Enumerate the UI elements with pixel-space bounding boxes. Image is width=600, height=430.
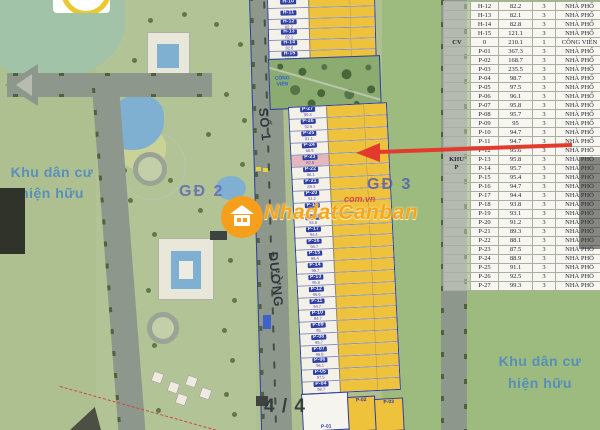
lot-label: H-10 — [280, 0, 296, 5]
table-row: P-01367.33NHÀ PHỐ — [444, 47, 600, 56]
lot-strip-left: P-0995 — [300, 321, 337, 334]
table-cell-area: 82.2 — [499, 2, 533, 10]
lot-area: 95.7 — [311, 269, 319, 273]
table-cell-area: 99.3 — [499, 282, 533, 290]
lot-strip-left: H-1282.2 — [269, 19, 310, 30]
table-cell-floors: 3 — [533, 183, 556, 191]
label-phase-2: GĐ 2 — [179, 183, 224, 201]
table-cell-group — [444, 210, 471, 218]
lot-strip-left: H-10 — [268, 0, 309, 8]
table-cell-floors: 3 — [533, 165, 556, 173]
table-cell-id: P-09 — [471, 119, 499, 127]
table-cell-floors: 3 — [533, 65, 556, 73]
roundabout — [133, 152, 167, 186]
table-cell-floors: 3 — [533, 92, 556, 100]
road-marker-yellow — [263, 168, 268, 172]
group-label-line: P — [444, 164, 469, 172]
page-marker: 4 / 4 — [264, 396, 306, 418]
table-cell-id: H-14 — [471, 20, 499, 28]
tree-icons — [0, 0, 5, 5]
table-cell-group — [444, 92, 471, 100]
road-marking — [13, 73, 210, 76]
table-row: P-0795.83NHÀ PHỐ — [444, 101, 600, 110]
table-row: P-2387.53NHÀ PHỐ — [444, 246, 600, 255]
table-cell-floors: 3 — [533, 119, 556, 127]
lot-area: 95.8 — [312, 280, 320, 284]
table-cell-area: 95.7 — [499, 110, 533, 118]
table-cell-id: P-21 — [471, 228, 499, 236]
table-cell-id: P-01 — [471, 47, 499, 55]
table-cell-area: 95 — [499, 119, 533, 127]
lot-strip-left: P-0795.8 — [301, 345, 338, 358]
table-row: P-2091.23NHÀ PHỐ — [444, 219, 600, 228]
table-row: P-2692.53NHÀ PHỐ — [444, 273, 600, 282]
road-west-arrow-inner — [16, 74, 32, 96]
lot-strip-left: P-2387.5 — [291, 154, 328, 167]
lot-strip-left: P-1595.4 — [296, 249, 333, 262]
table-cell-group — [444, 174, 471, 182]
table-cell-group: CV — [444, 38, 471, 46]
table-cell-group — [444, 20, 471, 28]
table-cell-group — [444, 192, 471, 200]
corner-logo — [53, 0, 110, 13]
lot-area: 94.4 — [310, 233, 318, 237]
lot-area: 95.6 — [313, 292, 321, 296]
table-cell-floors: 3 — [533, 147, 556, 155]
table-cell-floors: 1 — [533, 38, 556, 46]
lot-strip-left: P-0597.5 — [302, 369, 339, 382]
table-row: P-1194.73NHÀ PHỐ — [444, 137, 600, 146]
lot-area: 95.7 — [315, 340, 323, 344]
lot-area: 97.5 — [317, 376, 325, 380]
table-cell-type: NHÀ PHỐ — [556, 119, 600, 127]
table-cell-group — [444, 119, 471, 127]
table-cell-area: 95.4 — [499, 174, 533, 182]
park-label: CÔNG VIÊN — [275, 76, 290, 88]
lot-p03: P-03 — [374, 397, 405, 430]
lot-strip-left: P-1295.6 — [298, 285, 335, 298]
table-cell-type: NHÀ PHỐ — [556, 255, 600, 263]
table-cell-group — [444, 273, 471, 281]
table-row: H-1382.13NHÀ PHỐ — [444, 11, 600, 20]
table-cell-floors: 3 — [533, 56, 556, 64]
courtyard-pool — [157, 44, 179, 68]
lot-area: 89.3 — [307, 185, 315, 189]
table-cell-floors: 3 — [533, 29, 556, 37]
lot-label: P-01 — [321, 423, 332, 430]
table-cell-area: 96.1 — [499, 92, 533, 100]
table-cell-group — [444, 74, 471, 82]
table-row: P-1094.73NHÀ PHỐ — [444, 128, 600, 137]
table-cell-id: P-11 — [471, 137, 499, 145]
table-cell-id: P-02 — [471, 56, 499, 64]
table-cell-area: 92.5 — [499, 273, 533, 281]
label-line: hiện hữu — [480, 372, 600, 394]
table-cell-id: P-03 — [471, 65, 499, 73]
table-cell-area: 98.7 — [499, 74, 533, 82]
table-cell-group — [444, 137, 471, 145]
table-cell-id: P-14 — [471, 165, 499, 173]
lot-area: 95 — [316, 328, 321, 332]
lot-strip-left: P-2288.1 — [292, 166, 329, 179]
lot-strip-left: P-1395.8 — [297, 273, 334, 286]
dark-rect — [0, 188, 25, 254]
lot-strip-left: P-2488.9 — [291, 142, 328, 155]
lot-area: 95.8 — [316, 352, 324, 356]
table-cell-floors: 3 — [533, 101, 556, 109]
watermark-brand: NhadatCanban — [264, 201, 418, 225]
table-cell-area: 168.7 — [499, 56, 533, 64]
lot-label: P-03 — [383, 399, 394, 406]
table-cell-id: P-20 — [471, 219, 499, 227]
roundabout-2 — [147, 312, 179, 344]
table-cell-floors: 3 — [533, 219, 556, 227]
table-cell-area: 93.1 — [499, 210, 533, 218]
table-row: P-2189.33NHÀ PHỐ — [444, 228, 600, 237]
road-marker-blue — [263, 315, 271, 329]
table-row: P-1993.13NHÀ PHỐ — [444, 210, 600, 219]
lot-label: P-02 — [356, 397, 367, 404]
table-cell-type: NHÀ PHỐ — [556, 2, 600, 10]
table-cell-id: P-15 — [471, 174, 499, 182]
table-cell-group — [444, 219, 471, 227]
table-cell-type: NHÀ PHỐ — [556, 264, 600, 272]
table-cell-type: NHÀ PHỐ — [556, 128, 600, 136]
table-row: P-1595.43NHÀ PHỐ — [444, 174, 600, 183]
table-cell-area: 95.6 — [499, 147, 533, 155]
table-row: H-15121.13NHÀ PHỐ — [444, 29, 600, 38]
table-cell-type: NHÀ PHỐ — [556, 83, 600, 91]
p-lot-block: P-2799.3P-2692.5P-2591.1P-2488.9P-2387.5… — [288, 102, 401, 394]
table-cell-group — [444, 147, 471, 155]
lot-area: 98.7 — [317, 388, 325, 392]
table-cell-id: 0 — [471, 38, 499, 46]
table-cell-id: P-04 — [471, 74, 499, 82]
table-cell-area: 82.1 — [499, 11, 533, 19]
table-cell-area: 97.5 — [499, 83, 533, 91]
masterplan-screenshot: H-10H-11H-1282.2H-1382.1H-1482.8H-15121.… — [0, 0, 600, 430]
table-cell-id: H-15 — [471, 29, 499, 37]
table-cell-type: NHÀ PHỐ — [556, 273, 600, 281]
table-cell-area: 87.5 — [499, 246, 533, 254]
road-marker-yellow — [256, 167, 261, 171]
table-row: P-2288.13NHÀ PHỐ — [444, 237, 600, 246]
watermark-domain: com.vn — [344, 194, 376, 204]
table-cell-floors: 3 — [533, 273, 556, 281]
lot-area: 92.5 — [304, 125, 312, 129]
lot-strip-left: P-1694.7 — [295, 237, 332, 250]
watermark-house-windows-icon — [237, 218, 241, 222]
table-cell-group — [444, 246, 471, 254]
label-line: Khu dân cư — [480, 350, 600, 372]
table-group-khu-p: KHU P — [444, 156, 469, 173]
table-cell-floors: 3 — [533, 246, 556, 254]
table-cell-floors: 3 — [533, 210, 556, 218]
table-cell-type: NHÀ PHỐ — [556, 101, 600, 109]
table-cell-floors: 3 — [533, 128, 556, 136]
table-row: P-1794.43NHÀ PHỐ — [444, 192, 600, 201]
table-cell-group — [444, 2, 471, 10]
table-cell-group — [444, 56, 471, 64]
table-cell-floors: 3 — [533, 156, 556, 164]
table-cell-group — [444, 264, 471, 272]
lot-strip-left: H-1482.8 — [269, 40, 310, 51]
lot-area: 94.7 — [314, 316, 322, 320]
lot-strip-left: P-1495.7 — [297, 261, 334, 274]
lot-strip-yellow — [309, 6, 375, 18]
lot-strip-left: P-2692.5 — [290, 118, 327, 131]
table-cell-group — [444, 201, 471, 209]
courtyard-center — [179, 261, 193, 279]
table-row: H-1282.23NHÀ PHỐ — [444, 2, 600, 11]
table-cell-id: H-13 — [471, 11, 499, 19]
table-cell-floors: 3 — [533, 237, 556, 245]
table-cell-id: P-27 — [471, 282, 499, 290]
lot-strip-left: H-11 — [268, 8, 309, 19]
lot-strip-yellow — [339, 378, 400, 392]
table-row: P-02168.73NHÀ PHỐ — [444, 56, 600, 65]
table-row: P-1694.73NHÀ PHỐ — [444, 183, 600, 192]
table-cell-id: P-23 — [471, 246, 499, 254]
table-cell-floors: 3 — [533, 2, 556, 10]
lot-label: H-11 — [281, 10, 297, 15]
table-cell-area: 210.1 — [499, 38, 533, 46]
table-cell-floors: 3 — [533, 192, 556, 200]
table-cell-type: NHÀ PHỐ — [556, 92, 600, 100]
table-cell-group — [444, 47, 471, 55]
lot-strip-left: P-1794.4 — [295, 226, 332, 239]
table-cell-id: P-22 — [471, 237, 499, 245]
lot-area: 88.9 — [306, 149, 314, 153]
table-cell-id: H-12 — [471, 2, 499, 10]
table-cell-type: NHÀ PHỐ — [556, 147, 600, 155]
table-cell-area: 94.7 — [499, 128, 533, 136]
lot-strip-yellow — [309, 38, 375, 50]
table-cell-group — [444, 255, 471, 263]
lot-p02: P-02 — [347, 396, 377, 430]
table-cell-area: 95.8 — [499, 156, 533, 164]
table-cell-type: NHÀ PHỐ — [556, 20, 600, 28]
lot-area: 91.1 — [305, 137, 313, 141]
table-cell-id: P-13 — [471, 156, 499, 164]
table-cell-group — [444, 29, 471, 37]
table-row: P-2591.13NHÀ PHỐ — [444, 264, 600, 273]
lot-strip-yellow — [309, 28, 375, 40]
table-cell-area: 88.1 — [499, 237, 533, 245]
lot-strip-left: P-0696.1 — [301, 357, 338, 370]
table-row: P-0597.53NHÀ PHỐ — [444, 83, 600, 92]
table-cell-id: P-12 — [471, 147, 499, 155]
table-cell-group — [444, 228, 471, 236]
table-cell-group — [444, 83, 471, 91]
table-cell-group — [444, 183, 471, 191]
lot-strip-left: P-1194.7 — [298, 297, 335, 310]
dark-band — [579, 157, 600, 249]
table-cell-area: 82.8 — [499, 20, 533, 28]
table-row: P-1295.63NHÀ PHỐ — [444, 147, 600, 156]
lot-area: 95.4 — [311, 257, 319, 261]
table-cell-group — [444, 101, 471, 109]
table-cell-id: P-10 — [471, 128, 499, 136]
table-cell-floors: 3 — [533, 228, 556, 236]
table-cell-floors: 3 — [533, 83, 556, 91]
lot-area: 99.3 — [304, 113, 312, 117]
table-cell-floors: 3 — [533, 137, 556, 145]
table-cell-id: P-18 — [471, 201, 499, 209]
table-row: P-0895.73NHÀ PHỐ — [444, 110, 600, 119]
table-cell-type: NHÀ PHỐ — [556, 137, 600, 145]
table-cell-group — [444, 11, 471, 19]
lot-strip-left: P-1094.7 — [299, 309, 336, 322]
table-cell-area: 93.8 — [499, 201, 533, 209]
lot-strip-left: P-2799.3 — [289, 106, 326, 119]
table-cell-type: NHÀ PHỐ — [556, 11, 600, 19]
table-cell-id: P-25 — [471, 264, 499, 272]
table-row: H-1482.83NHÀ PHỐ — [444, 20, 600, 29]
table-row: P-0498.73NHÀ PHỐ — [444, 74, 600, 83]
lot-area: 82.8 — [286, 47, 294, 51]
table-cell-group — [444, 65, 471, 73]
table-cell-type: NHÀ PHỐ — [556, 282, 600, 290]
table-cell-id: P-08 — [471, 110, 499, 118]
table-cell-id: P-07 — [471, 101, 499, 109]
table-cell-floors: 3 — [533, 20, 556, 28]
table-row: P-2488.93NHÀ PHỐ — [444, 255, 600, 264]
lot-area: 82.2 — [285, 25, 293, 29]
table-cell-floors: 3 — [533, 255, 556, 263]
h-lot-block: H-10H-11H-1282.2H-1382.1H-1482.8H-15121.… — [267, 0, 377, 63]
table-cell-type: CÔNG VIÊN — [556, 38, 600, 46]
table-cell-id: P-17 — [471, 192, 499, 200]
table-row: CV0210.11CÔNG VIÊN — [444, 38, 600, 47]
watermark-house-roof-icon — [230, 205, 254, 214]
group-label-line: KHU — [444, 156, 469, 164]
table-row: P-0696.13NHÀ PHỐ — [444, 92, 600, 101]
table-cell-floors: 3 — [533, 282, 556, 290]
table-cell-floors: 3 — [533, 11, 556, 19]
table-cell-type: NHÀ PHỐ — [556, 47, 600, 55]
table-cell-type: NHÀ PHỐ — [556, 110, 600, 118]
lot-strip-left: H-1382.1 — [269, 29, 310, 40]
table-cell-floors: 3 — [533, 264, 556, 272]
table-row: P-09953NHÀ PHỐ — [444, 119, 600, 128]
table-cell-area: 367.3 — [499, 47, 533, 55]
lot-label: H-12 — [281, 19, 297, 24]
table-cell-floors: 3 — [533, 47, 556, 55]
lot-area: 87.5 — [306, 161, 314, 165]
table-cell-area: 94.7 — [499, 183, 533, 191]
label-phase-3: GĐ 3 — [367, 176, 412, 194]
table-cell-type: NHÀ PHỐ — [556, 56, 600, 64]
table-cell-area: 91.1 — [499, 264, 533, 272]
lot-strip-left: P-2591.1 — [290, 130, 327, 143]
table-cell-group — [444, 110, 471, 118]
table-cell-id: P-06 — [471, 92, 499, 100]
building-block-2 — [158, 238, 214, 300]
table-cell-group — [444, 128, 471, 136]
table-cell-floors: 3 — [533, 110, 556, 118]
table-cell-area: 91.2 — [499, 219, 533, 227]
table-cell-id: P-26 — [471, 273, 499, 281]
table-cell-area: 95.8 — [499, 101, 533, 109]
label-line: Khu dân cư — [2, 162, 102, 183]
lot-strip-left: P-0895.7 — [300, 333, 337, 346]
table-row: P-03235.53NHÀ PHỐ — [444, 65, 600, 74]
table-cell-id: P-24 — [471, 255, 499, 263]
park-strip: CÔNG VIÊN — [268, 55, 382, 110]
table-cell-id: P-05 — [471, 83, 499, 91]
lot-area: 94.7 — [313, 304, 321, 308]
table-cell-type: NHÀ PHỐ — [556, 29, 600, 37]
lot-p01: P-01 — [301, 392, 350, 430]
table-cell-area: 88.9 — [499, 255, 533, 263]
table-cell-area: 94.4 — [499, 192, 533, 200]
table-cell-id: P-16 — [471, 183, 499, 191]
label-residential-right: Khu dân cư hiện hữu — [480, 350, 600, 395]
table-row: P-1893.83NHÀ PHỐ — [444, 201, 600, 210]
table-cell-area: 121.1 — [499, 29, 533, 37]
lot-area: 94.7 — [310, 245, 318, 249]
table-cell-group — [444, 282, 471, 290]
road-structure — [210, 231, 227, 240]
table-cell-id: P-19 — [471, 210, 499, 218]
table-row: P-2799.33NHÀ PHỐ — [444, 282, 600, 291]
lot-strip-left: P-2189.3 — [293, 178, 330, 191]
table-cell-type: NHÀ PHỐ — [556, 65, 600, 73]
lot-area: 82.1 — [285, 36, 293, 40]
table-cell-area: 89.3 — [499, 228, 533, 236]
lot-strip-yellow — [309, 17, 375, 29]
park-label-line2: VIÊN — [275, 82, 290, 88]
table-cell-group — [444, 237, 471, 245]
table-cell-type: NHÀ PHỐ — [556, 74, 600, 82]
lot-area: 88.1 — [307, 173, 315, 177]
table-cell-floors: 3 — [533, 74, 556, 82]
table-cell-area: 235.5 — [499, 65, 533, 73]
table-cell-area: 94.7 — [499, 137, 533, 145]
table-cell-floors: 3 — [533, 174, 556, 182]
table-cell-area: 95.7 — [499, 165, 533, 173]
lot-area: 96.1 — [316, 364, 324, 368]
lot-table: H-1282.23NHÀ PHỐH-1382.13NHÀ PHỐH-1482.8… — [443, 1, 600, 291]
table-cell-floors: 3 — [533, 201, 556, 209]
corner-logo-ring-icon — [61, 0, 110, 13]
